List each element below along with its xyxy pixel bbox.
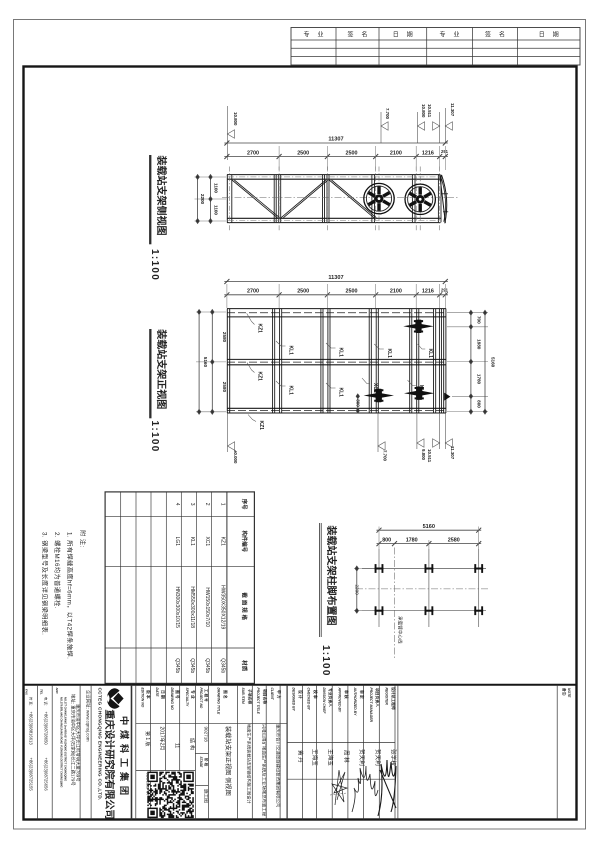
svg-text:装载站支架侧视图: 装载站支架侧视图 <box>155 155 168 236</box>
svg-text:EDITION NO: EDITION NO <box>141 688 145 708</box>
svg-text:REGISTER: REGISTER <box>385 688 389 706</box>
svg-text:1880: 1880 <box>476 339 481 350</box>
svg-text:902718: 902718 <box>203 727 208 743</box>
svg-text:阶 段: 阶 段 <box>204 758 209 767</box>
svg-text:±0.000: ±0.000 <box>233 450 238 464</box>
svg-text:DRAWING NO: DRAWING NO <box>170 688 174 711</box>
svg-text:构件编号: 构件编号 <box>241 531 249 553</box>
svg-text:KL1: KL1 <box>427 349 433 359</box>
svg-text:NO.177 CHANGJIANG 2nd ROAD YUZ: NO.177 CHANGJIANG 2nd ROAD YUZHONG DISTR… <box>63 697 67 781</box>
svg-text:电 话:: 电 话: <box>43 697 48 706</box>
svg-text:Q345b: Q345b <box>204 658 210 673</box>
svg-text:第 1 版: 第 1 版 <box>144 731 151 747</box>
svg-text:XC1: XC1 <box>204 536 210 546</box>
svg-text:审 核: 审 核 <box>344 690 349 699</box>
svg-text:审 定: 审 定 <box>360 690 365 699</box>
svg-text:期: 期 <box>553 31 559 39</box>
svg-text:Q345b: Q345b <box>174 658 180 673</box>
svg-text:施工图: 施工图 <box>202 789 209 803</box>
svg-text:结构: 结构 <box>189 738 196 752</box>
svg-text:1:100: 1:100 <box>149 249 160 281</box>
svg-text:DESIGNED BY: DESIGNED BY <box>292 688 296 712</box>
svg-text:PROJECT TITLE: PROJECT TITLE <box>256 688 260 715</box>
svg-text:黄 丹: 黄 丹 <box>296 750 304 763</box>
svg-text:PROJECT MANAGER: PROJECT MANAGER <box>369 688 373 723</box>
svg-text:地面生产系统装载站支架钢结构施工图设计: 地面生产系统装载站支架钢结构施工图设计 <box>246 724 253 804</box>
svg-text:800: 800 <box>382 537 391 543</box>
svg-text:重庆市渝中区大坪长江村增明大厦789号: 重庆市渝中区大坪长江村增明大厦789号 <box>75 704 82 782</box>
svg-text:NOTE: NOTE <box>567 688 571 698</box>
svg-text:CLIENT: CLIENT <box>270 688 274 701</box>
svg-text:11307: 11307 <box>328 275 343 281</box>
svg-text:STAGE: STAGE <box>199 757 203 769</box>
svg-text:中煤科工集团: 中煤科工集团 <box>119 716 130 800</box>
svg-text:兴隆山煤矿地面生产系统及工业场地总布置工程: 兴隆山煤矿地面生产系统及工业场地总布置工程 <box>260 724 267 817</box>
svg-text:KL1: KL1 <box>338 348 344 358</box>
svg-text:项目负责人: 项目负责人 <box>375 688 380 707</box>
svg-text:截面规格: 截面规格 <box>241 592 249 622</box>
svg-text:KL1: KL1 <box>386 349 392 359</box>
svg-text:业: 业 <box>453 31 459 39</box>
svg-text:2700: 2700 <box>247 150 259 156</box>
svg-text:291: 291 <box>441 149 449 154</box>
svg-text:HW150x150x7/10: HW150x150x7/10 <box>204 587 210 627</box>
svg-text:附 注:: 附 注: <box>79 530 87 548</box>
svg-text:1216: 1216 <box>422 150 434 156</box>
svg-text:KL1: KL1 <box>189 537 195 546</box>
svg-text:TEL: TEL <box>39 689 43 695</box>
svg-text:2. 螺栓M16均为普通螺栓.: 2. 螺栓M16均为普通螺栓. <box>53 532 61 609</box>
svg-text:专 业: 专 业 <box>190 690 195 699</box>
svg-text:+86(23)68725656: +86(23)68725656 <box>43 758 48 792</box>
svg-text:DATE: DATE <box>155 688 159 698</box>
svg-text:2100: 2100 <box>390 289 402 295</box>
svg-text:1: 1 <box>219 503 225 506</box>
svg-text:2580: 2580 <box>222 382 227 393</box>
svg-text:专: 专 <box>439 31 445 39</box>
svg-text:HW350X350X12/19: HW350X350X12/19 <box>219 585 225 629</box>
svg-text:10.511: 10.511 <box>427 449 432 463</box>
svg-text:名: 名 <box>361 31 367 39</box>
svg-text:图 名: 图 名 <box>223 690 228 699</box>
svg-text:2580: 2580 <box>222 332 227 343</box>
svg-text:名: 名 <box>499 31 505 39</box>
svg-text:日: 日 <box>539 32 545 39</box>
svg-text:800: 800 <box>476 400 481 408</box>
svg-text:2200: 2200 <box>354 584 359 595</box>
svg-text:9.800: 9.800 <box>421 449 426 461</box>
svg-text:KZ1: KZ1 <box>219 537 225 546</box>
svg-text:PROJECT NO: PROJECT NO <box>199 688 203 709</box>
svg-text:装载站支架柱脚布置图: 装载站支架柱脚布置图 <box>325 525 338 626</box>
svg-text:7.700: 7.700 <box>385 108 390 120</box>
svg-text:Q345b: Q345b <box>189 658 195 673</box>
svg-text:SPECIALTY: SPECIALTY <box>185 688 189 708</box>
svg-text:备注:: 备注: <box>562 687 567 696</box>
svg-text:HN300x300x10/15: HN300x300x10/15 <box>174 586 180 628</box>
svg-text:HM550x300x11/18: HM550x300x11/18 <box>189 586 195 628</box>
svg-text:贺天利: 贺天利 <box>374 749 382 766</box>
svg-text:重庆设计研究院有限公司: 重庆设计研究院有限公司 <box>103 710 116 820</box>
svg-text:11: 11 <box>173 743 179 748</box>
svg-text:ADD: ADD <box>55 687 59 694</box>
svg-text:DIVISION CHIEF: DIVISION CHIEF <box>322 688 326 715</box>
svg-text:10.511: 10.511 <box>427 104 432 118</box>
svg-text:企业网址: www.cqmsj.com: 企业网址: www.cqmsj.com <box>85 690 92 742</box>
svg-text:5160: 5160 <box>423 524 435 530</box>
svg-text:1:100: 1:100 <box>149 421 160 453</box>
svg-text:2500: 2500 <box>297 289 309 295</box>
svg-text:3. 钢梁型号及长度详见钢梁明细表.: 3. 钢梁型号及长度详见钢梁明细表. <box>41 532 49 635</box>
svg-text:材质: 材质 <box>241 659 249 671</box>
svg-text:KL1: KL1 <box>288 346 294 356</box>
svg-text:2017年2月: 2017年2月 <box>159 727 166 751</box>
svg-text:+86(23)68728650: +86(23)68728650 <box>43 712 48 746</box>
svg-text:工 程 号: 工 程 号 <box>204 689 209 702</box>
svg-text:5160: 5160 <box>203 357 208 368</box>
svg-text:设 计: 设 计 <box>298 690 303 699</box>
svg-text:KZ1: KZ1 <box>257 372 263 382</box>
svg-text:承载臂中心线: 承载臂中心线 <box>397 616 404 644</box>
svg-text:装载站支架正视图: 装载站支架正视图 <box>155 328 168 409</box>
svg-text:1100: 1100 <box>213 183 218 193</box>
svg-text:子项名称: 子项名称 <box>248 689 253 704</box>
svg-text:2580: 2580 <box>448 537 460 543</box>
svg-text:项目名称: 项目名称 <box>262 689 267 704</box>
svg-text:LG1: LG1 <box>174 537 180 547</box>
svg-text:2500: 2500 <box>346 150 358 156</box>
svg-text:日: 日 <box>393 32 399 39</box>
svg-text:业: 业 <box>317 31 323 39</box>
svg-text:AUTHORIZED BY: AUTHORIZED BY <box>353 687 357 717</box>
svg-text:+86(23)68816613: +86(23)68816613 <box>29 712 34 746</box>
svg-text:10.800: 10.800 <box>421 104 426 118</box>
svg-text:传 真:: 传 真: <box>29 697 34 706</box>
svg-text:王海玉: 王海玉 <box>327 749 335 766</box>
svg-text:291: 291 <box>441 287 449 292</box>
svg-text:甲 方: 甲 方 <box>277 690 282 699</box>
svg-text:4: 4 <box>174 503 180 506</box>
svg-text:1:100: 1:100 <box>320 645 331 677</box>
svg-text:1216: 1216 <box>422 289 434 295</box>
svg-text:NO.179 ERLANG CHANGJIANG ROAD: NO.179 ERLANG CHANGJIANG ROAD YUZHONG DI… <box>59 697 63 787</box>
svg-text:设计总工程师: 设计总工程师 <box>391 687 396 710</box>
svg-text:1780: 1780 <box>406 537 418 543</box>
svg-text:2: 2 <box>204 503 210 506</box>
svg-text:图 号: 图 号 <box>175 690 180 699</box>
svg-text:2100: 2100 <box>390 150 402 156</box>
svg-text:KZ1: KZ1 <box>257 324 263 334</box>
svg-text:1780: 1780 <box>476 374 481 385</box>
svg-text:10.800: 10.800 <box>233 112 238 126</box>
svg-text:KZ1: KZ1 <box>258 421 264 431</box>
svg-text:日 期: 日 期 <box>161 690 166 699</box>
svg-text:3: 3 <box>189 503 195 506</box>
svg-text:版 本: 版 本 <box>146 690 151 699</box>
svg-text:序号: 序号 <box>241 498 249 510</box>
svg-text:5160: 5160 <box>490 357 495 368</box>
svg-text:装载站支架正视图 侧视图: 装载站支架正视图 侧视图 <box>224 726 232 796</box>
svg-text:KL1: KL1 <box>338 388 344 398</box>
svg-text:SUB ITEM: SUB ITEM <box>241 688 245 704</box>
svg-text:专业负责人: 专业负责人 <box>328 688 333 707</box>
svg-text:重庆市合川交通旅游建设投资集团有限公司: 重庆市合川交通旅游建设投资集团有限公司 <box>274 724 281 807</box>
svg-text:2200: 2200 <box>200 194 205 205</box>
svg-text:11307: 11307 <box>328 137 343 143</box>
svg-text:1100: 1100 <box>213 205 218 215</box>
svg-text:王海玉: 王海玉 <box>311 749 319 766</box>
svg-text:期: 期 <box>407 31 413 39</box>
svg-text:800: 800 <box>355 399 360 407</box>
svg-text:贺天利: 贺天利 <box>358 749 366 766</box>
svg-text:11.307: 11.307 <box>450 103 455 117</box>
svg-text:签: 签 <box>485 31 491 39</box>
svg-text:2700: 2700 <box>247 289 259 295</box>
svg-text:2500: 2500 <box>297 150 309 156</box>
svg-text:7.700: 7.700 <box>382 450 387 462</box>
svg-text:FAX: FAX <box>25 689 29 696</box>
svg-text:地址: 重庆市渝中区大坪(石家岗)长江二路179号: 地址: 重庆市渝中区大坪(石家岗)长江二路179号 <box>69 694 76 786</box>
svg-text:2500: 2500 <box>346 289 358 295</box>
svg-text:APPROVED BY: APPROVED BY <box>338 687 342 713</box>
svg-text:专: 专 <box>303 31 309 39</box>
svg-text:+86(23)68725155: +86(23)68725155 <box>29 758 34 792</box>
svg-text:校 审: 校 审 <box>313 690 318 699</box>
svg-text:DRAWING TITLE: DRAWING TITLE <box>217 688 221 715</box>
svg-text:CCTEG CHONGQING ENGINEERING CO: CCTEG CHONGQING ENGINEERING CO.,LTD. <box>98 688 103 801</box>
svg-text:11.307: 11.307 <box>450 446 455 460</box>
svg-text:1. 所有焊缝高度hf=6mm，以T42焊条施焊.: 1. 所有焊缝高度hf=6mm，以T42焊条施焊. <box>66 532 74 659</box>
svg-text:CHECKED BY: CHECKED BY <box>307 688 311 711</box>
svg-text:KL1: KL1 <box>288 386 294 396</box>
svg-text:Q345b: Q345b <box>219 658 225 673</box>
svg-text:签: 签 <box>347 31 353 39</box>
svg-text:700: 700 <box>476 316 481 324</box>
svg-text:周 林: 周 林 <box>342 750 350 763</box>
